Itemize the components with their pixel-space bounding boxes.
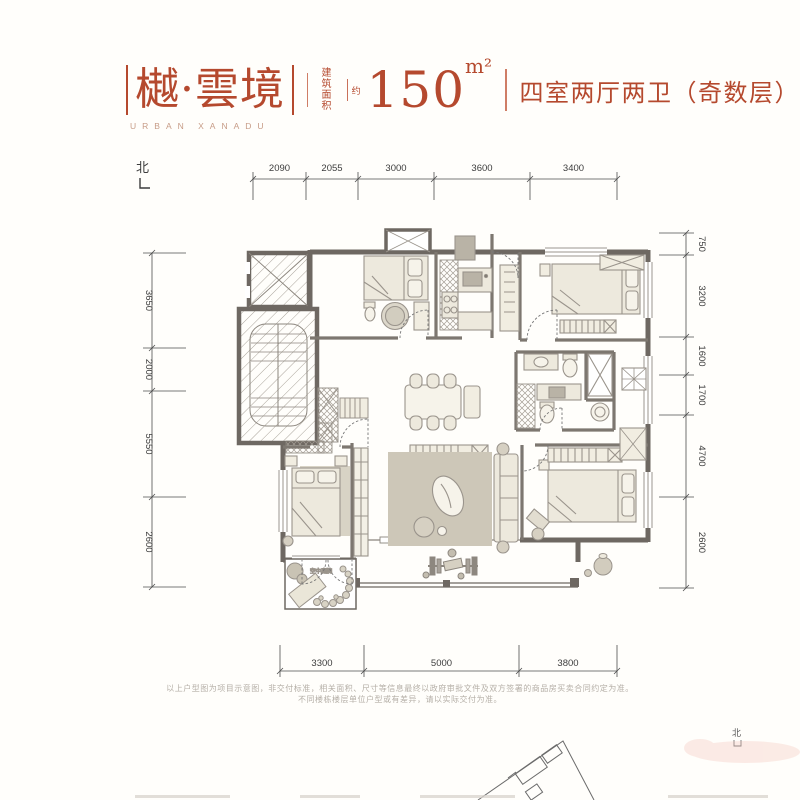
bottom-edge-marks	[135, 795, 768, 798]
living-room	[388, 443, 518, 553]
north-label: 北	[136, 160, 149, 175]
dimension-label: 4700	[696, 445, 707, 466]
exercise-equipment	[423, 549, 478, 579]
dimension-label: 3400	[563, 163, 584, 174]
disclaimer-line-2: 不同楼栋楼层单位户型或有差异，请以实际交付为准。	[0, 694, 800, 705]
stairwell	[239, 309, 317, 443]
dimension-label: 2090	[269, 163, 290, 174]
dimension-label: 3200	[696, 285, 707, 306]
site-map	[478, 741, 594, 800]
dimension-label: 5000	[431, 658, 452, 669]
floor-plan-canvas: 北	[0, 0, 800, 800]
north-indicator: 北	[136, 160, 150, 188]
vase	[585, 554, 613, 577]
dimension-label: 2600	[143, 531, 154, 552]
dimension-label: 2055	[321, 163, 342, 174]
dimension-label: 3000	[385, 163, 406, 174]
bedroom-bottom-left	[283, 448, 368, 556]
dimension-label: 750	[696, 236, 707, 252]
disclaimer-line-1: 以上户型图为项目示意图，非交付标准，相关面积、尺寸等信息最终以政府审批文件及双方…	[0, 683, 800, 694]
dining-table	[405, 374, 480, 430]
site-north-label: 北	[732, 728, 741, 738]
watermark	[684, 739, 800, 763]
dimension-label: 3300	[311, 658, 332, 669]
elevator-shaft	[245, 253, 309, 307]
dimension-label: 1600	[696, 345, 707, 366]
dimension-label: 5550	[143, 433, 154, 454]
dimension-label: 1700	[696, 384, 707, 405]
dimension-label: 3600	[471, 163, 492, 174]
dimension-label: 3800	[557, 658, 578, 669]
north-arrow-icon	[140, 178, 150, 188]
bathroom	[517, 354, 646, 428]
dimension-label: 3650	[143, 290, 154, 311]
bedroom-top-left	[364, 256, 429, 330]
balcony	[351, 549, 612, 587]
disclaimer: 以上户型图为项目示意图，非交付标准，相关面积、尺寸等信息最终以政府审批文件及双方…	[0, 683, 800, 705]
garden-balcony: 空中庭院	[285, 559, 356, 609]
dimension-label: 2000	[143, 359, 154, 380]
bedroom-top-right	[540, 255, 644, 333]
dimension-label: 2600	[696, 532, 707, 553]
